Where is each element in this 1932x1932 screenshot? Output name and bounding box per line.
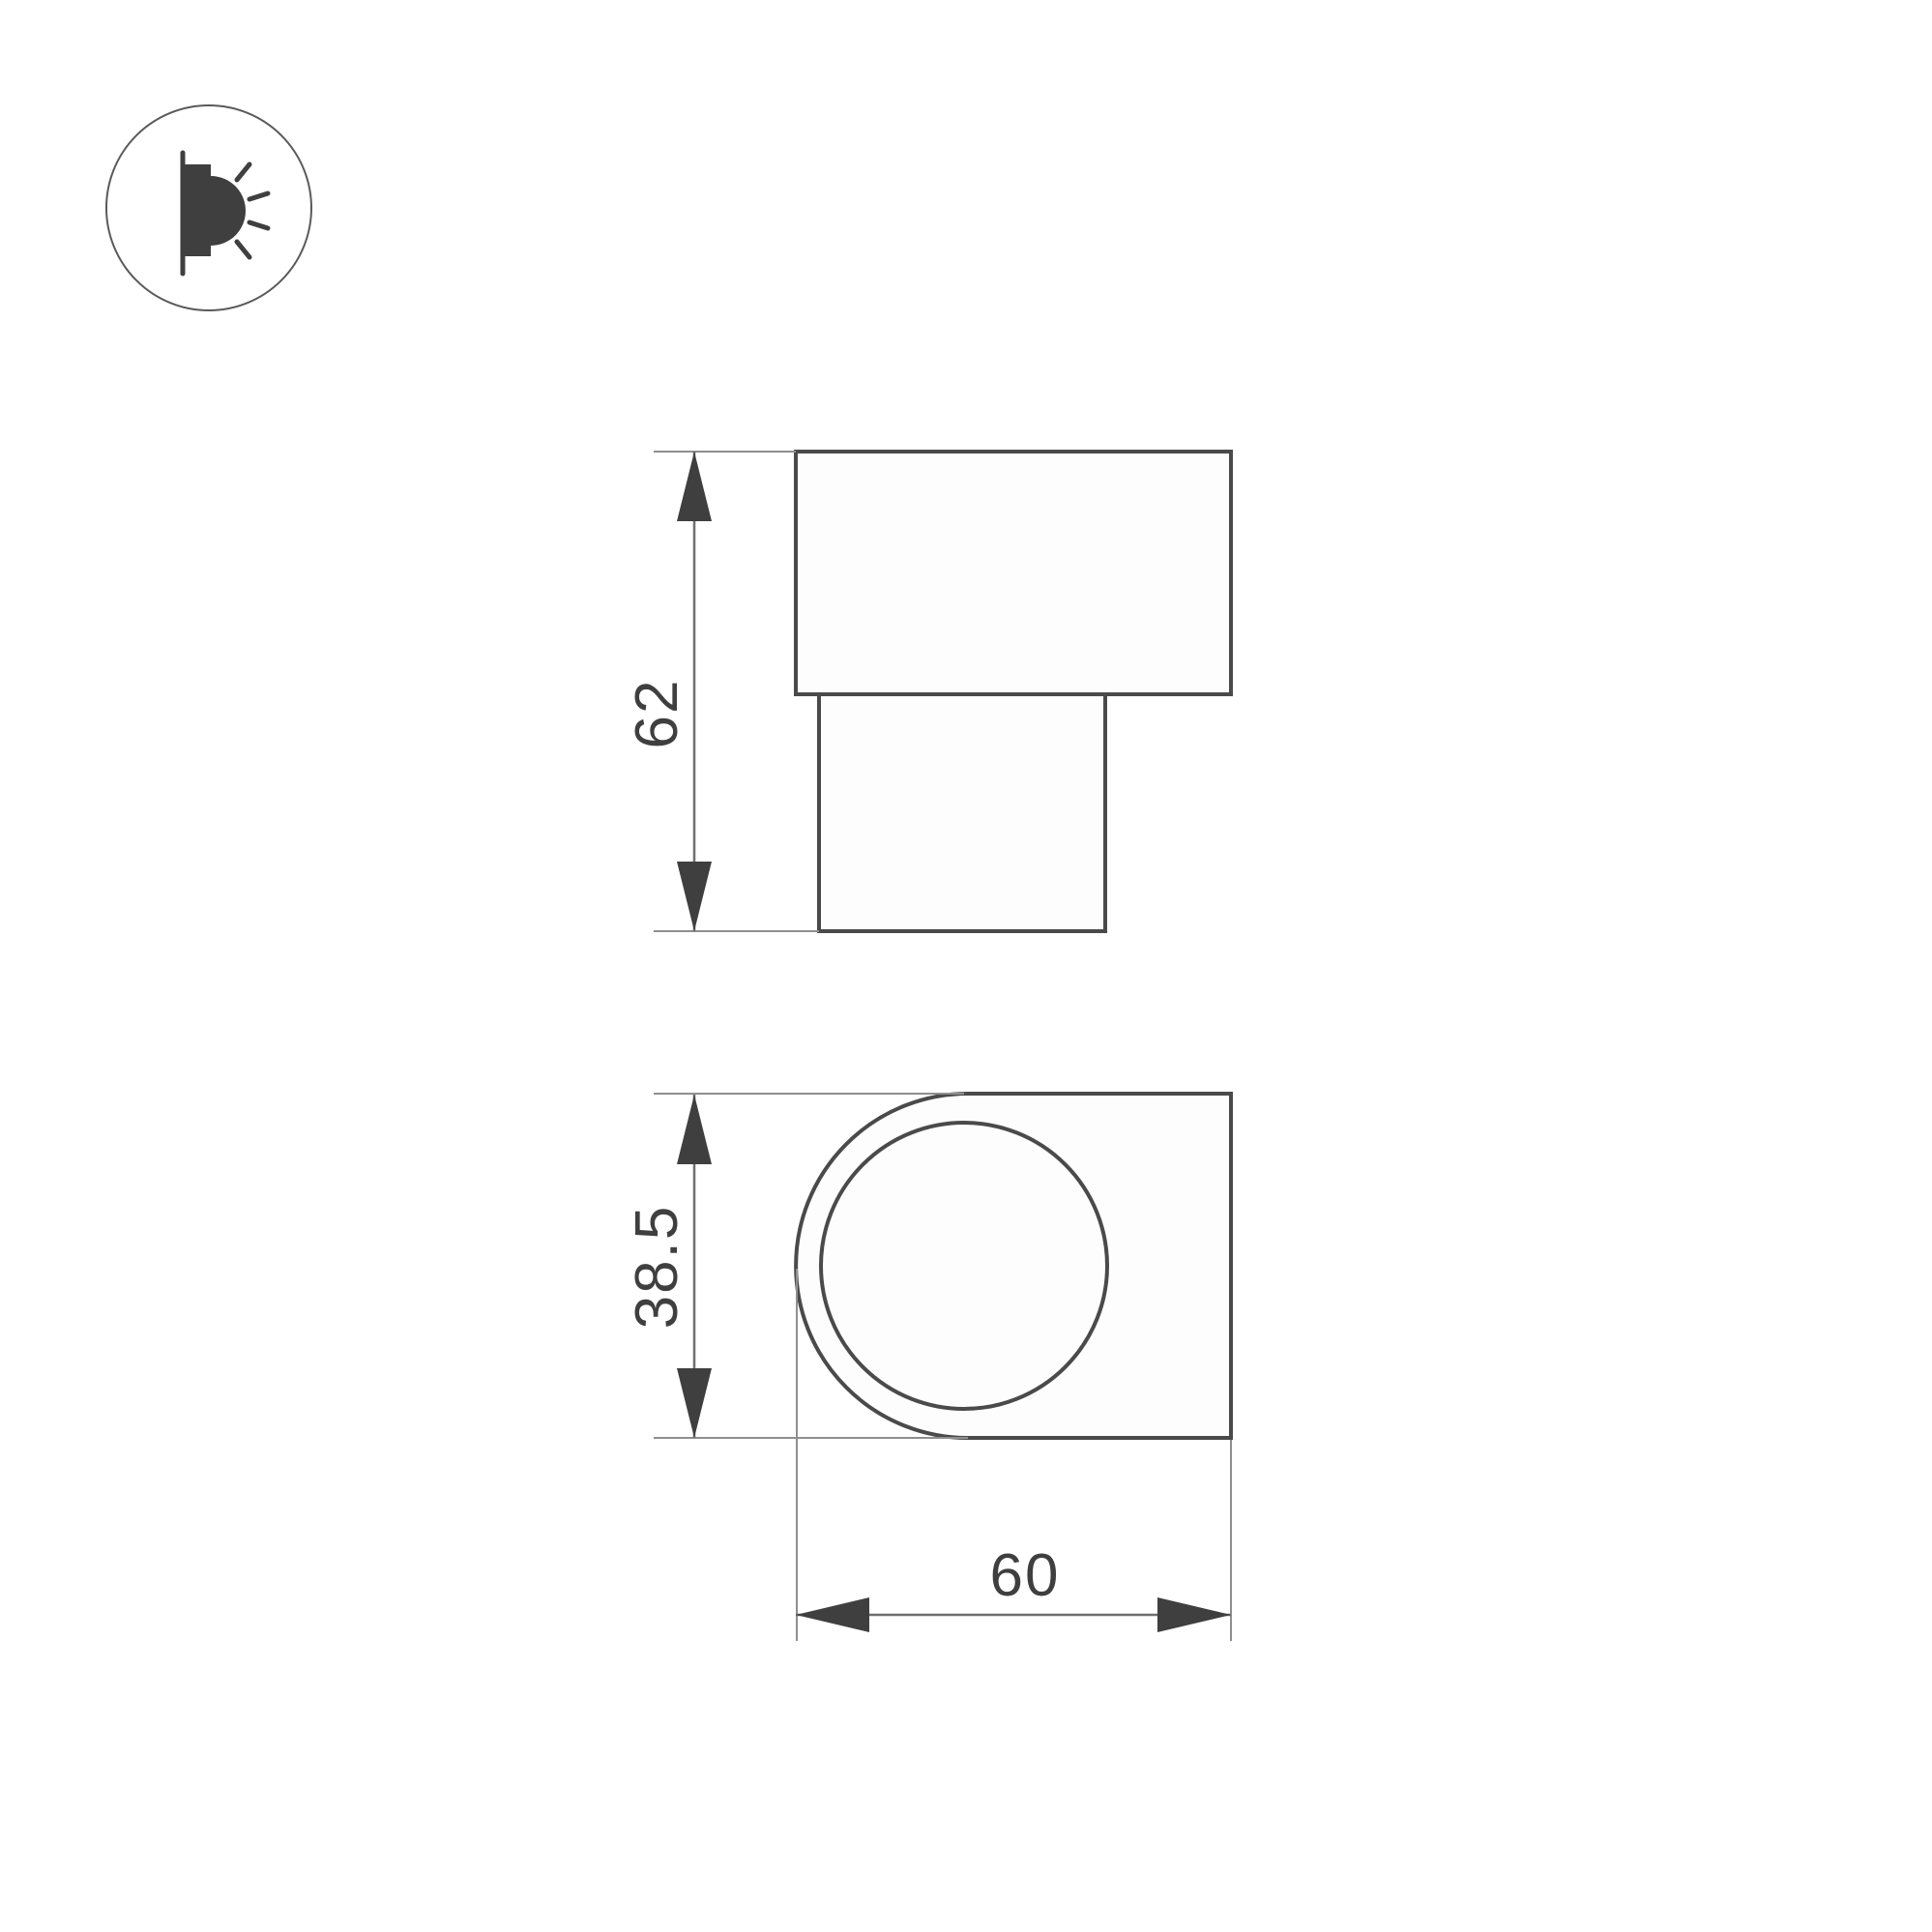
arrow-down [677,1368,712,1438]
front-height-value: 62 [624,679,690,749]
front-view-body [819,694,1105,931]
arrow-right [1157,1597,1231,1632]
wall-lamp-icon [106,105,311,310]
technical-drawing-canvas: 62 38.5 60 [0,0,1932,1932]
arrow-down [677,862,712,931]
front-view-drawing: 62 [624,452,1231,931]
icon-lamp-body [185,164,211,256]
arrow-up [677,452,712,521]
side-view-drawing: 38.5 60 [624,1094,1231,1641]
side-height-value: 38.5 [624,1205,690,1330]
arrow-left [796,1597,869,1632]
front-height-dimension: 62 [624,452,819,931]
side-width-value: 60 [990,1542,1061,1609]
front-view-head [796,452,1231,694]
arrow-up [677,1095,712,1164]
side-view-lens-circle [821,1123,1107,1409]
